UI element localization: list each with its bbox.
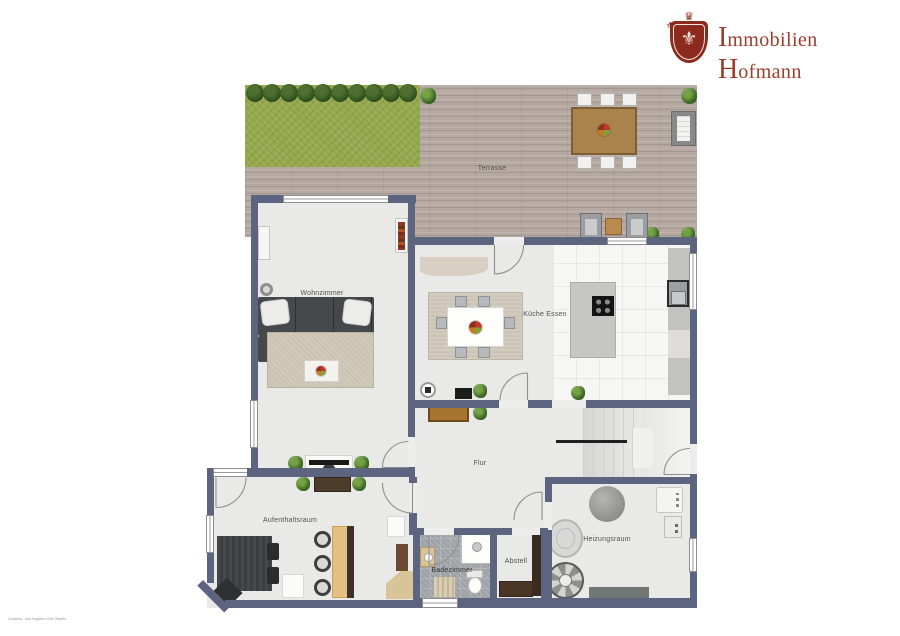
terrace-side-table: [605, 218, 622, 235]
bar-stool-icon: [314, 531, 331, 548]
dining-chair: [504, 317, 515, 329]
fruit-bowl-icon: [598, 124, 610, 136]
wall-segment: [690, 572, 697, 598]
kitchen-sideboard: [420, 257, 488, 276]
kitchen-sink-icon: [667, 280, 689, 307]
wall-segment: [207, 553, 214, 583]
room-label-heizungsraum: Heizungsraum: [567, 536, 647, 543]
door-opening: [690, 444, 697, 474]
wall-segment: [454, 528, 512, 535]
tv-icon: [309, 460, 349, 465]
hedge-bush-icon: [263, 84, 281, 102]
bar-stool-icon: [314, 555, 331, 572]
brand-word1-rest: mmobilien: [727, 29, 817, 51]
dining-chair: [436, 317, 447, 329]
window: [283, 195, 389, 203]
storage-cabinet: [499, 581, 533, 597]
door-opening: [545, 502, 552, 530]
sofa-cushion: [342, 298, 373, 326]
wall-shelf: [258, 226, 270, 260]
wall-segment: [690, 310, 697, 408]
wall-segment: [413, 528, 424, 535]
plan-footnote: Grundriss - alle Angaben ohne Gewähr: [8, 617, 66, 621]
fleur-de-lis-icon: ⚜: [670, 28, 708, 51]
hedge-bush-icon: [382, 84, 400, 102]
wall-segment: [225, 600, 431, 608]
hedge-bush-icon: [314, 84, 332, 102]
seat-cube: [282, 574, 304, 598]
hedge-bush-icon: [365, 84, 383, 102]
wall-segment: [690, 408, 697, 444]
wall-segment: [207, 477, 214, 515]
books: [398, 222, 405, 250]
lounger-slats: [677, 116, 690, 141]
corridor-floor: [415, 477, 545, 535]
window: [689, 538, 697, 572]
window: [689, 253, 697, 310]
houseplant-icon: [473, 406, 487, 420]
brand-word2-initial: H: [718, 54, 738, 85]
floor-lamp-icon: [260, 283, 273, 296]
commonroom-chair: [267, 543, 279, 560]
hedge-bush-icon: [399, 84, 417, 102]
room-label-aufenthaltsraum: Aufenthaltsraum: [250, 517, 330, 524]
window: [250, 400, 258, 448]
dining-chair: [478, 347, 490, 358]
room-label-abstell: Abstell: [496, 558, 536, 565]
window: [213, 468, 248, 477]
bar-counter: [332, 526, 348, 598]
hedge-bush-icon: [280, 84, 298, 102]
window: [607, 237, 647, 245]
toilet-bowl-icon: [468, 577, 482, 594]
terrace-chair: [577, 156, 592, 169]
terrace-armchair: [626, 213, 648, 240]
armchair-cushion: [631, 219, 643, 235]
door-opening: [424, 528, 454, 535]
door-opening: [408, 437, 415, 467]
wall-segment: [541, 535, 548, 598]
tall-cabinet: [396, 544, 408, 571]
dining-chair: [455, 296, 467, 307]
cooktop-icon: [592, 296, 614, 316]
sink-icon: [424, 553, 433, 562]
terrace-chair: [622, 156, 637, 169]
unit-buttons: [675, 522, 678, 533]
stool-seat: [425, 387, 431, 393]
wall-segment: [524, 237, 607, 245]
storage-tall-shelf: [532, 534, 541, 596]
bar-counter-edge: [347, 526, 354, 598]
heating-tank-icon: [589, 486, 625, 522]
staircase-turn-step: [632, 428, 653, 468]
floorplan-page: ♛ ❧ ❧ ⚜ Immobilien Hofmann: [0, 0, 900, 636]
houseplant-icon: [352, 477, 366, 491]
wall-segment: [690, 237, 697, 253]
heating-mat: [589, 587, 649, 598]
hedge-bush-icon: [348, 84, 366, 102]
houseplant-icon: [296, 477, 310, 491]
commonroom-chair: [267, 567, 279, 584]
side-cabinet: [387, 516, 405, 537]
bath-mat: [434, 577, 455, 597]
kitchen-island: [570, 282, 616, 358]
dining-chair: [478, 296, 490, 307]
stair-handrail: [556, 440, 627, 443]
crest-shield-icon: ⚜: [670, 21, 708, 63]
door-opening: [499, 400, 528, 408]
stair-opening: [552, 400, 586, 408]
kitchen-appliance: [668, 330, 690, 358]
washer-drum: [559, 574, 572, 587]
brand-word2-rest: ofmann: [738, 61, 802, 83]
wall-segment: [408, 400, 499, 408]
sink-basin: [671, 291, 686, 305]
wall-segment: [413, 598, 422, 608]
fruit-bowl-icon: [316, 366, 326, 376]
sideboard: [314, 477, 351, 492]
room-label-flur: Flur: [460, 460, 500, 467]
bar-stool-icon: [314, 579, 331, 596]
potted-plant-icon: [681, 88, 697, 104]
room-label-badezimmer: Badezimmer: [412, 567, 492, 574]
wall-segment: [251, 448, 258, 469]
dining-chair: [455, 347, 467, 358]
houseplant-icon: [571, 386, 585, 400]
wall-segment: [247, 468, 415, 477]
hedge-bush-icon: [331, 84, 349, 102]
hedge-bush-icon: [297, 84, 315, 102]
doormat: [455, 388, 472, 399]
door-opening: [512, 528, 540, 535]
wall-segment: [415, 237, 494, 245]
shower-drain-icon: [472, 542, 482, 552]
brand-word1-initial: I: [718, 22, 727, 53]
wall-segment: [586, 400, 697, 408]
window: [422, 598, 458, 608]
unit-buttons: [676, 493, 679, 507]
room-label-wohnzimmer: Wohnzimmer: [282, 290, 362, 297]
bathroom-vanity: [420, 547, 435, 567]
shower: [461, 531, 492, 564]
wall-segment: [540, 528, 548, 535]
kitchen-counter: [668, 248, 690, 395]
terrace-chair: [622, 93, 637, 106]
room-label-kueche: Küche Essen: [505, 311, 585, 318]
wall-segment: [545, 477, 697, 484]
wall-segment: [545, 598, 697, 608]
wall-segment: [545, 484, 552, 502]
room-label-terrasse: Terrasse: [452, 165, 532, 172]
window: [206, 515, 214, 553]
sun-lounger: [671, 111, 696, 146]
wall-segment: [251, 195, 284, 203]
fruit-bowl-icon: [469, 321, 482, 334]
wall-segment: [690, 484, 697, 538]
door-opening: [409, 483, 417, 513]
houseplant-icon: [473, 384, 487, 398]
brand-wordmark: Immobilien Hofmann: [718, 22, 900, 86]
bookshelf: [395, 218, 408, 253]
washing-machine-icon: [547, 562, 584, 599]
wall-boiler-unit: [656, 487, 683, 513]
terrace-chair: [600, 93, 615, 106]
kitchen-stool-icon: [420, 382, 436, 398]
terrace-armchair: [580, 213, 602, 240]
hedge-bush-icon: [246, 84, 264, 102]
potted-plant-icon: [420, 88, 436, 104]
wall-segment: [458, 598, 548, 608]
armchair-cushion: [585, 219, 597, 235]
wall-segment: [528, 400, 552, 408]
sofa-cushion: [260, 298, 291, 326]
wall-segment: [251, 203, 258, 400]
door-opening: [494, 237, 524, 245]
terrace-chair: [600, 156, 615, 169]
terrace-chair: [577, 93, 592, 106]
wall-control-unit: [664, 516, 682, 538]
